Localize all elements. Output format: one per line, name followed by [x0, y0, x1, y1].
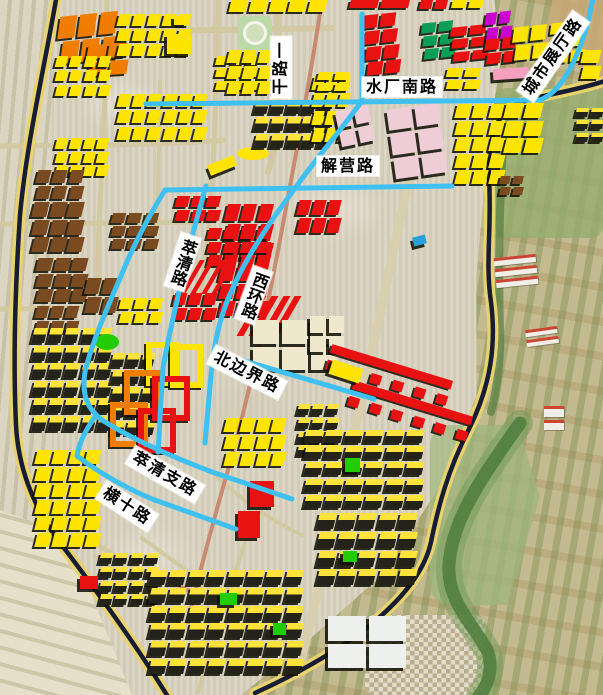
road-label-xihuan-lu: 西环路 [234, 265, 273, 325]
map-canvas[interactable]: 干路一水厂南路城市展厅路解营路萃清路西环路北边界路萃清支路横十路 [0, 0, 603, 695]
road-label-shuichang-nanlu: 水厂南路 [362, 77, 442, 98]
road-label-ganlu-yi: 干路一 [271, 36, 292, 98]
road-label-jieying-lu: 解营路 [317, 156, 379, 177]
road-label-chengshi-zhanting-lu: 城市展厅路 [516, 10, 589, 102]
road-label-layer: 干路一水厂南路城市展厅路解营路萃清路西环路北边界路萃清支路横十路 [0, 0, 603, 695]
road-label-hengshi-lu: 横十路 [95, 480, 158, 531]
road-label-beibianjie-lu: 北边界路 [207, 345, 288, 400]
road-label-cuiqing-zhilu: 萃清支路 [125, 445, 205, 503]
road-label-cuiqing-lu: 萃清路 [163, 232, 200, 292]
